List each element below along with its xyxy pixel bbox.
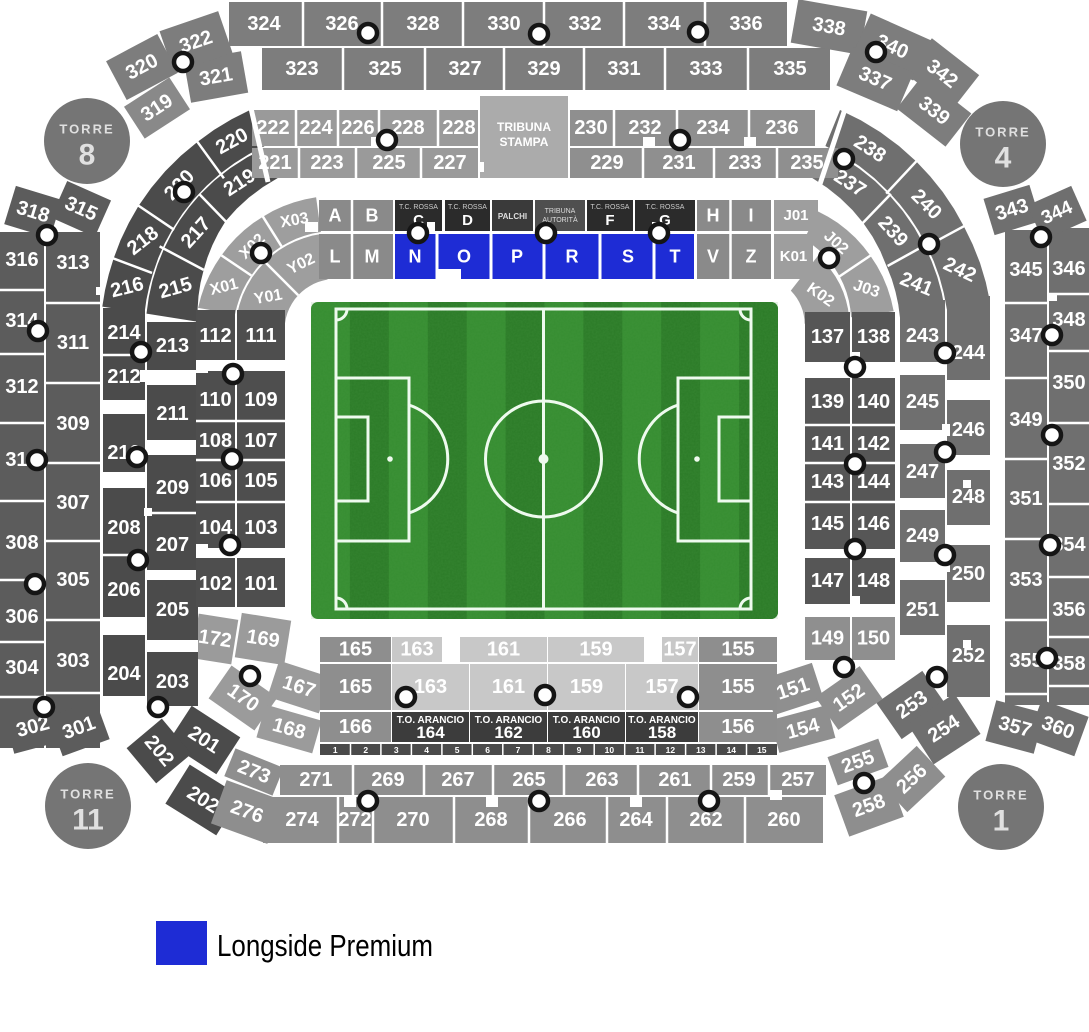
svg-text:305: 305 <box>56 569 89 591</box>
svg-text:6: 6 <box>485 745 490 755</box>
svg-text:332: 332 <box>568 13 601 35</box>
svg-text:12: 12 <box>666 745 676 755</box>
svg-text:257: 257 <box>781 769 814 791</box>
svg-text:274: 274 <box>285 809 319 831</box>
svg-text:4: 4 <box>995 142 1012 175</box>
svg-text:1: 1 <box>333 745 338 755</box>
svg-text:209: 209 <box>156 477 189 499</box>
svg-text:TRIBUNA: TRIBUNA <box>497 120 551 134</box>
svg-text:7: 7 <box>516 745 521 755</box>
svg-text:163: 163 <box>400 639 433 661</box>
svg-text:108: 108 <box>199 430 232 452</box>
svg-text:307: 307 <box>56 492 89 514</box>
svg-text:250: 250 <box>952 563 985 585</box>
svg-text:TORRE: TORRE <box>59 122 114 137</box>
svg-text:TORRE: TORRE <box>975 125 1030 140</box>
svg-text:TRIBUNA: TRIBUNA <box>545 208 576 215</box>
svg-text:346: 346 <box>1052 258 1085 280</box>
svg-text:311: 311 <box>57 332 89 354</box>
svg-text:112: 112 <box>199 325 231 347</box>
svg-text:14: 14 <box>727 745 737 755</box>
svg-text:5: 5 <box>455 745 460 755</box>
svg-text:249: 249 <box>906 525 939 547</box>
svg-text:140: 140 <box>857 391 890 413</box>
svg-text:111: 111 <box>245 325 276 347</box>
svg-text:109: 109 <box>244 389 277 411</box>
svg-text:267: 267 <box>441 769 474 791</box>
svg-text:11: 11 <box>635 745 644 755</box>
svg-text:144: 144 <box>857 471 891 493</box>
svg-text:214: 214 <box>107 322 141 344</box>
svg-text:316: 316 <box>5 249 38 271</box>
svg-text:262: 262 <box>689 809 722 831</box>
svg-text:TORRE: TORRE <box>973 788 1028 803</box>
svg-text:245: 245 <box>906 391 939 413</box>
svg-text:161: 161 <box>492 676 525 698</box>
svg-text:4: 4 <box>424 745 429 755</box>
svg-text:TORRE: TORRE <box>60 787 115 802</box>
svg-text:139: 139 <box>811 391 844 413</box>
svg-text:163: 163 <box>414 676 447 698</box>
svg-text:306: 306 <box>5 606 38 628</box>
svg-text:11: 11 <box>72 804 104 837</box>
svg-text:157: 157 <box>663 639 696 661</box>
svg-text:Longside Premium: Longside Premium <box>217 928 433 963</box>
svg-text:223: 223 <box>310 152 343 174</box>
svg-text:V: V <box>707 247 719 267</box>
svg-text:158: 158 <box>648 723 676 742</box>
svg-text:222: 222 <box>256 117 289 139</box>
svg-text:J01: J01 <box>783 207 808 224</box>
svg-text:207: 207 <box>156 534 189 556</box>
svg-text:334: 334 <box>647 13 681 35</box>
svg-text:313: 313 <box>56 252 89 274</box>
svg-text:235: 235 <box>790 152 823 174</box>
svg-text:234: 234 <box>696 117 730 139</box>
svg-text:3: 3 <box>394 745 399 755</box>
svg-text:145: 145 <box>811 513 844 535</box>
svg-text:333: 333 <box>689 58 722 80</box>
svg-text:L: L <box>330 247 341 267</box>
svg-text:D: D <box>462 212 473 229</box>
svg-text:246: 246 <box>952 419 985 441</box>
svg-text:166: 166 <box>339 716 372 738</box>
svg-text:261: 261 <box>658 769 691 791</box>
svg-text:356: 356 <box>1052 599 1085 621</box>
svg-text:260: 260 <box>767 809 800 831</box>
svg-text:H: H <box>707 206 720 226</box>
svg-text:B: B <box>366 206 379 226</box>
svg-text:330: 330 <box>487 13 520 35</box>
svg-text:164: 164 <box>416 723 445 742</box>
svg-text:156: 156 <box>721 716 754 738</box>
svg-text:13: 13 <box>696 745 706 755</box>
svg-text:146: 146 <box>857 513 890 535</box>
svg-text:9: 9 <box>577 745 582 755</box>
svg-text:M: M <box>365 247 380 267</box>
svg-text:F: F <box>605 212 614 229</box>
svg-text:102: 102 <box>199 573 232 595</box>
svg-text:P: P <box>511 247 523 267</box>
svg-text:212: 212 <box>107 366 140 388</box>
svg-text:143: 143 <box>811 471 844 493</box>
svg-text:105: 105 <box>244 470 277 492</box>
svg-text:268: 268 <box>474 809 507 831</box>
svg-text:159: 159 <box>570 676 603 698</box>
svg-text:155: 155 <box>721 639 754 661</box>
svg-text:148: 148 <box>857 570 890 592</box>
svg-text:110: 110 <box>199 389 231 411</box>
svg-text:251: 251 <box>906 599 939 621</box>
svg-text:15: 15 <box>757 745 767 755</box>
svg-text:325: 325 <box>368 58 401 80</box>
svg-text:165: 165 <box>339 639 372 661</box>
svg-text:328: 328 <box>406 13 439 35</box>
svg-text:351: 351 <box>1009 488 1042 510</box>
svg-text:150: 150 <box>857 628 890 650</box>
svg-text:266: 266 <box>553 809 586 831</box>
svg-text:323: 323 <box>285 58 318 80</box>
svg-text:N: N <box>409 247 422 267</box>
svg-text:308: 308 <box>5 532 38 554</box>
svg-text:347: 347 <box>1009 325 1042 347</box>
svg-text:T.C. ROSSA: T.C. ROSSA <box>399 204 438 211</box>
svg-text:R: R <box>566 247 579 267</box>
svg-text:233: 233 <box>728 152 761 174</box>
svg-text:208: 208 <box>107 517 140 539</box>
svg-text:159: 159 <box>579 639 612 661</box>
svg-text:228: 228 <box>442 117 475 139</box>
svg-text:265: 265 <box>512 769 545 791</box>
svg-text:T: T <box>670 247 681 267</box>
svg-text:225: 225 <box>372 152 405 174</box>
svg-text:205: 205 <box>156 599 189 621</box>
svg-text:138: 138 <box>857 326 890 348</box>
svg-text:269: 269 <box>371 769 404 791</box>
svg-text:243: 243 <box>906 325 939 347</box>
svg-text:326: 326 <box>325 13 358 35</box>
svg-text:213: 213 <box>156 335 189 357</box>
svg-text:147: 147 <box>811 570 844 592</box>
svg-text:T.C. ROSSA: T.C. ROSSA <box>448 204 487 211</box>
svg-text:S: S <box>622 247 634 267</box>
svg-text:327: 327 <box>448 58 481 80</box>
svg-text:264: 264 <box>619 809 653 831</box>
svg-text:STAMPA: STAMPA <box>500 135 549 149</box>
svg-text:106: 106 <box>199 470 232 492</box>
svg-text:248: 248 <box>952 486 985 508</box>
svg-text:I: I <box>748 206 753 226</box>
svg-text:303: 303 <box>56 650 89 672</box>
svg-text:K01: K01 <box>780 248 808 265</box>
svg-text:224: 224 <box>299 117 333 139</box>
svg-text:271: 271 <box>299 769 332 791</box>
svg-text:349: 349 <box>1009 409 1042 431</box>
svg-text:353: 353 <box>1009 569 1042 591</box>
svg-text:350: 350 <box>1052 372 1085 394</box>
svg-text:312: 312 <box>5 376 38 398</box>
svg-text:142: 142 <box>857 433 890 455</box>
svg-text:231: 231 <box>662 152 695 174</box>
svg-text:107: 107 <box>244 430 277 452</box>
svg-text:161: 161 <box>487 639 520 661</box>
svg-text:272: 272 <box>338 809 371 831</box>
svg-text:259: 259 <box>722 769 755 791</box>
svg-text:329: 329 <box>527 58 560 80</box>
svg-text:T.C. ROSSA: T.C. ROSSA <box>591 204 630 211</box>
svg-text:137: 137 <box>811 326 844 348</box>
svg-text:162: 162 <box>494 723 522 742</box>
svg-text:160: 160 <box>572 723 600 742</box>
svg-text:8: 8 <box>79 139 96 172</box>
svg-text:T.C. ROSSA: T.C. ROSSA <box>646 204 685 211</box>
svg-text:101: 101 <box>244 573 277 595</box>
svg-text:211: 211 <box>156 403 188 425</box>
svg-text:141: 141 <box>811 433 844 455</box>
svg-text:247: 247 <box>906 461 939 483</box>
svg-text:PALCHI: PALCHI <box>498 212 527 221</box>
svg-text:252: 252 <box>952 645 985 667</box>
svg-text:352: 352 <box>1052 453 1085 475</box>
svg-text:270: 270 <box>396 809 429 831</box>
svg-text:149: 149 <box>811 628 844 650</box>
svg-text:324: 324 <box>247 13 281 35</box>
svg-text:244: 244 <box>952 342 986 364</box>
svg-text:206: 206 <box>107 579 140 601</box>
svg-text:227: 227 <box>433 152 466 174</box>
svg-text:335: 335 <box>773 58 806 80</box>
svg-text:155: 155 <box>721 676 754 698</box>
svg-text:331: 331 <box>607 58 640 80</box>
svg-text:229: 229 <box>590 152 623 174</box>
svg-text:236: 236 <box>765 117 798 139</box>
svg-text:8: 8 <box>546 745 551 755</box>
svg-text:263: 263 <box>585 769 618 791</box>
svg-text:226: 226 <box>341 117 374 139</box>
svg-text:345: 345 <box>1009 259 1042 281</box>
svg-text:O: O <box>457 247 471 267</box>
svg-text:309: 309 <box>56 413 89 435</box>
svg-text:Z: Z <box>746 247 757 267</box>
svg-text:230: 230 <box>574 117 607 139</box>
svg-text:1: 1 <box>993 805 1010 838</box>
svg-text:336: 336 <box>729 13 762 35</box>
svg-text:157: 157 <box>645 676 678 698</box>
svg-text:A: A <box>329 206 342 226</box>
svg-text:103: 103 <box>244 517 277 539</box>
svg-text:204: 204 <box>107 663 141 685</box>
svg-text:165: 165 <box>339 676 372 698</box>
svg-text:10: 10 <box>605 745 615 755</box>
svg-text:2: 2 <box>363 745 368 755</box>
svg-text:304: 304 <box>5 657 39 679</box>
svg-text:232: 232 <box>628 117 661 139</box>
svg-text:203: 203 <box>156 671 189 693</box>
